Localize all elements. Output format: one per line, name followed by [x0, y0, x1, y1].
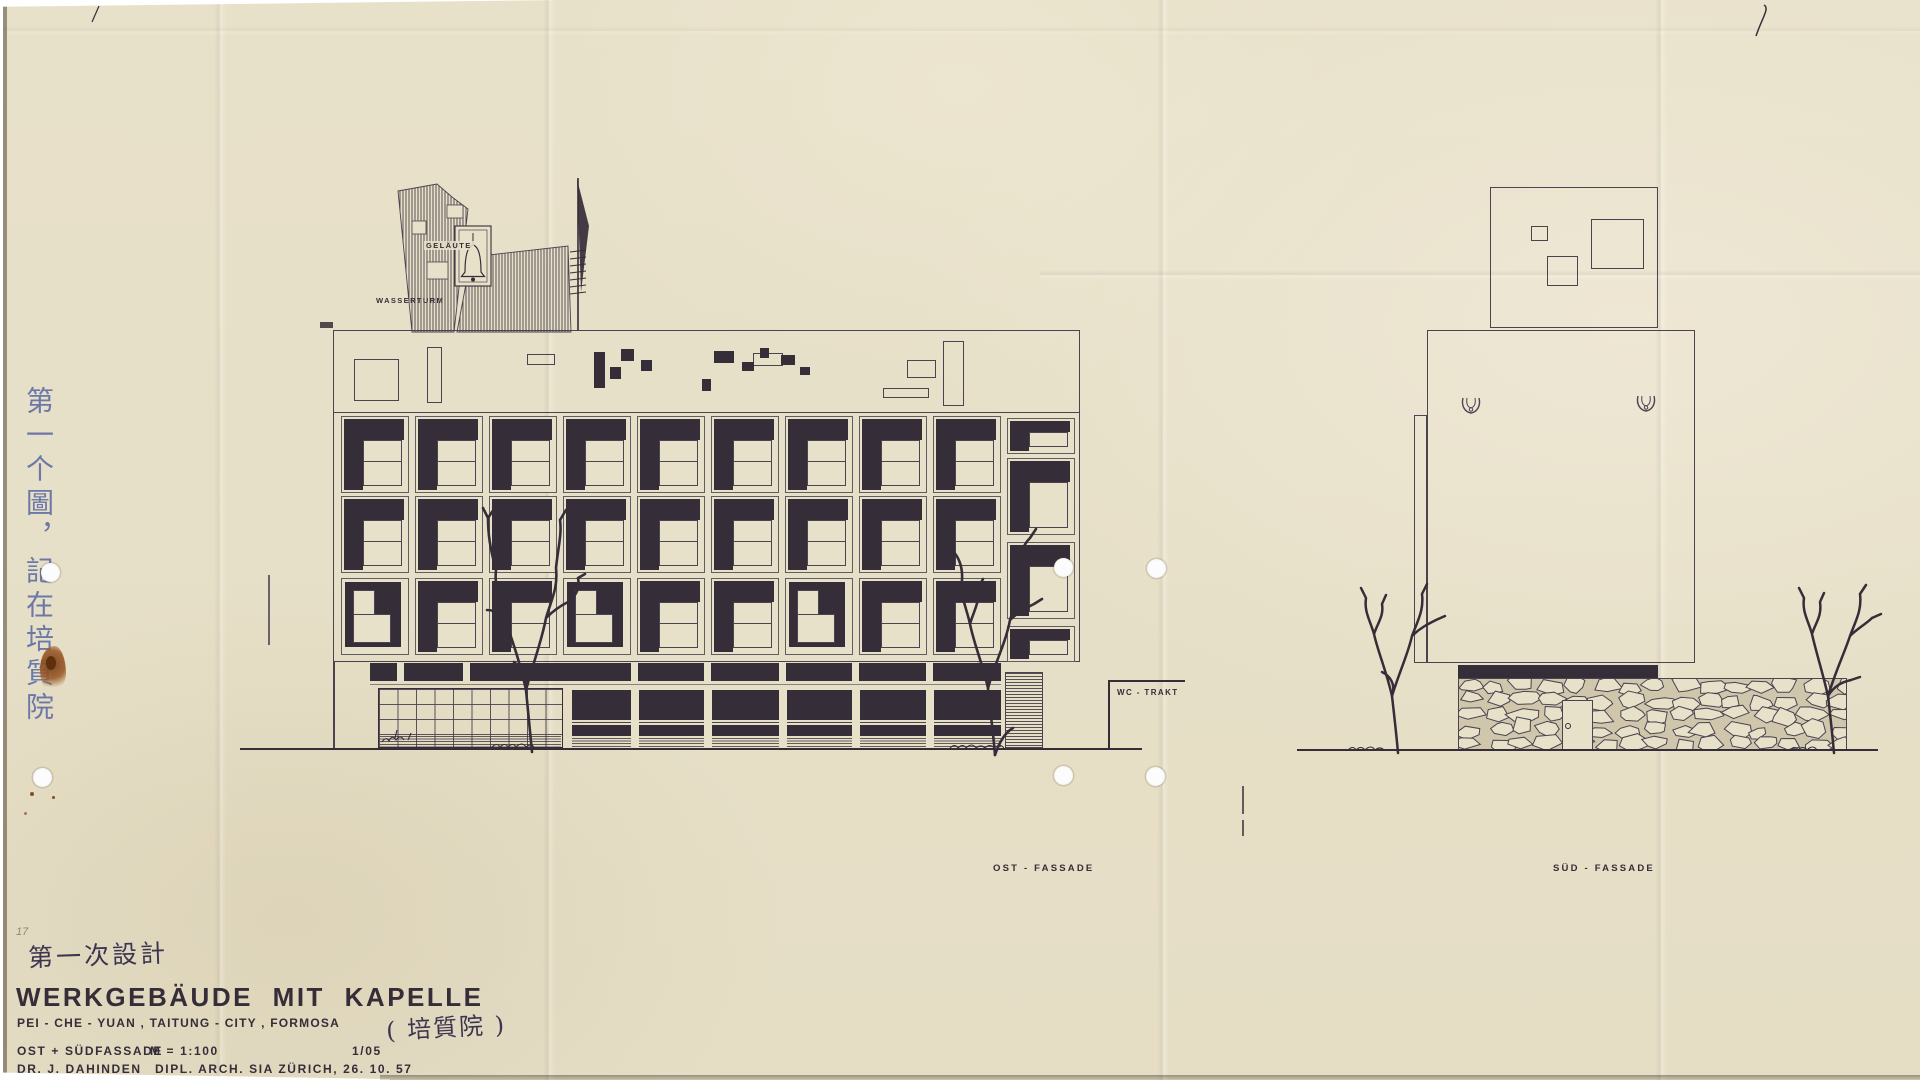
rust-stain-core	[46, 656, 56, 670]
handwritten-design-note: 第一次設計	[27, 934, 168, 975]
tree-south-right	[1799, 585, 1881, 753]
pen-dash	[1242, 820, 1244, 836]
rust-speck	[30, 792, 34, 796]
sheet-number: 1/05	[352, 1044, 382, 1058]
tree-east-left	[483, 508, 585, 752]
punch-hole	[1147, 559, 1166, 578]
punch-hole	[33, 768, 52, 787]
punch-hole	[1054, 766, 1073, 785]
scale-value: M = 1:100	[150, 1044, 219, 1058]
author-credentials: DIPL. ARCH. SIA ZÜRICH, 26. 10. 57	[155, 1062, 413, 1076]
sheet-subtitle: PEI - CHE - YUAN , TAITUNG - CITY , FORM…	[17, 1016, 340, 1030]
handwritten-paren-note: ( 培質院 )	[385, 1005, 507, 1046]
paper-edge	[380, 1075, 1920, 1080]
gargoyle-spout	[1462, 396, 1654, 413]
pen-dash	[1242, 786, 1244, 814]
rust-speck	[52, 796, 55, 799]
punch-hole	[1146, 767, 1165, 786]
paper-edge	[3, 0, 7, 1080]
linework-overlay	[0, 0, 1920, 1080]
punch-hole	[41, 563, 60, 582]
punch-hole	[1054, 558, 1073, 577]
pen-mark	[92, 6, 99, 22]
rust-speck	[24, 812, 27, 815]
drawing-sheet: GELÄUTE WASSERTURM WC - TRAKT OST - FASS…	[0, 0, 1920, 1080]
pen-mark	[1756, 5, 1766, 36]
pencil-sheet-number: 17	[16, 926, 28, 938]
scale-label: OST + SÜDFASSADE	[17, 1044, 163, 1058]
tree-south-left	[1361, 584, 1445, 753]
tree-east-right	[948, 529, 1042, 755]
sheet-title: WERKGEBÄUDE MIT KAPELLE	[16, 982, 484, 1013]
grass-scribbles	[382, 730, 1817, 750]
